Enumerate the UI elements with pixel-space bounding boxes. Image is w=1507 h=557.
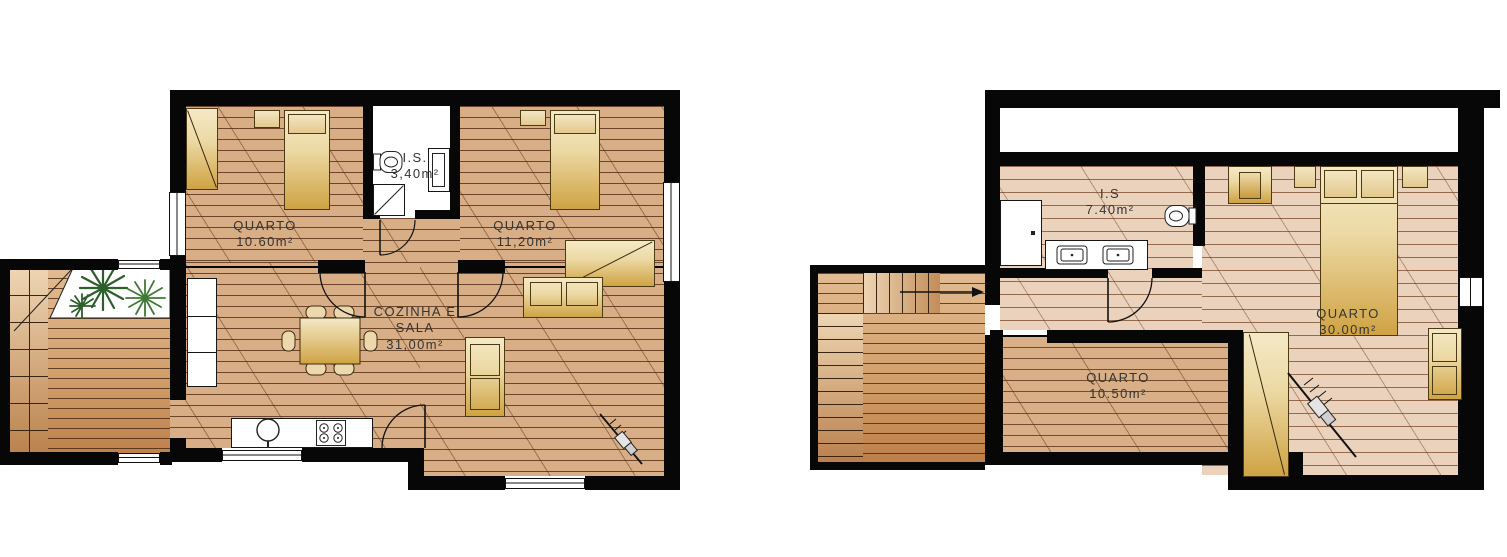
room-name: I.S. <box>378 150 452 166</box>
wall-segment <box>302 448 412 462</box>
pillow <box>1324 170 1357 198</box>
window <box>118 260 160 269</box>
room-name: QUARTO <box>190 218 340 234</box>
room-area: 31,00m² <box>340 337 490 353</box>
partition-line <box>1003 335 1047 337</box>
wall-segment <box>985 452 1243 465</box>
wall-segment <box>170 256 186 400</box>
room-name: QUARTO <box>450 218 600 234</box>
window <box>222 450 302 461</box>
room-label-bathroom: I.S. 3,40m² <box>378 150 452 183</box>
stair-direction-line <box>10 265 74 335</box>
room-area: 11,20m² <box>450 234 600 250</box>
wall-segment <box>170 90 680 106</box>
wardrobe <box>186 108 218 190</box>
nightstand <box>254 110 280 128</box>
wall-segment <box>985 90 1500 108</box>
cabinet-divider <box>188 316 216 317</box>
sofa-cushion <box>1432 366 1457 395</box>
sofa-cushion <box>530 282 562 306</box>
room-label-quarto-3: QUARTO 30.00m² <box>1268 306 1428 339</box>
wall-segment <box>0 259 10 465</box>
wall-segment <box>0 452 118 465</box>
room-name: I.S <box>1040 186 1180 202</box>
wall-segment <box>985 152 1484 166</box>
cabinet-divider <box>188 352 216 353</box>
wall-segment <box>810 265 818 470</box>
room-area: 10.50m² <box>1038 386 1198 402</box>
bed-fold-line <box>1321 203 1397 204</box>
roof-void-strip <box>1000 108 1458 152</box>
sofa-two-seat <box>523 277 603 318</box>
wall-segment <box>408 448 424 490</box>
pillow <box>288 114 326 134</box>
room-name: QUARTO <box>1038 370 1198 386</box>
room-area: 3,40m² <box>378 166 452 182</box>
door-swing-arc <box>1106 276 1154 324</box>
guitar-symbol <box>596 408 646 468</box>
room-area: 30.00m² <box>1268 322 1428 338</box>
wall-segment <box>1228 330 1243 465</box>
sofa-cushion <box>566 282 598 306</box>
room-name: COZINHA E <box>340 304 490 320</box>
room-area: 7.40m² <box>1040 202 1180 218</box>
window <box>505 478 585 489</box>
guitar-symbol <box>1282 365 1362 465</box>
window <box>118 453 160 463</box>
wall-segment <box>810 265 985 273</box>
sink-icon <box>253 417 283 449</box>
wall-segment <box>160 452 172 465</box>
shower <box>373 184 405 216</box>
door-swing-arc <box>378 218 418 258</box>
stove-icon <box>316 420 346 446</box>
wall-segment <box>424 476 505 490</box>
wall-segment <box>664 90 680 182</box>
sofa-cushion <box>470 378 500 410</box>
shower <box>1000 200 1042 266</box>
single-bed <box>284 110 330 210</box>
wall-segment <box>664 282 680 490</box>
wall-segment <box>1240 475 1484 490</box>
chair <box>282 331 295 351</box>
open-wardrobe <box>1228 166 1272 204</box>
window <box>1459 277 1483 307</box>
stair-direction-arrow <box>898 284 988 300</box>
sofa-cushion <box>1432 333 1457 362</box>
room-name-line2: SALA <box>340 320 490 336</box>
room-label-quarto-2: QUARTO 11,20m² <box>450 218 600 251</box>
floor-plan-drawing: QUARTO 10.60m² I.S. 3,40m² QUARTO 11,20m… <box>0 0 1507 557</box>
shower-drain <box>1031 231 1035 235</box>
wall-segment <box>1152 268 1202 278</box>
single-bed <box>550 110 600 210</box>
sofa-single <box>1428 328 1462 400</box>
room-label-quarto-4: QUARTO 10.50m² <box>1038 370 1198 403</box>
pillow <box>554 114 596 134</box>
wall-segment <box>160 259 170 270</box>
wall-segment <box>585 476 680 490</box>
wall-segment <box>985 90 1000 305</box>
double-vanity <box>1045 240 1148 270</box>
nightstand <box>520 110 546 126</box>
wall-segment <box>1047 330 1228 343</box>
room-name: QUARTO <box>1268 306 1428 322</box>
window <box>663 182 680 282</box>
door-swing-arc <box>380 403 427 450</box>
kitchen-tall-cabinet <box>187 278 217 387</box>
nightstand <box>1294 166 1316 188</box>
wall-segment <box>170 448 222 462</box>
wall-segment <box>810 462 985 470</box>
room-label-living: COZINHA E SALA 31,00m² <box>340 304 490 353</box>
wall-segment <box>0 259 118 270</box>
wall-segment <box>170 90 186 192</box>
room-area: 10.60m² <box>190 234 340 250</box>
partition-line <box>186 266 318 268</box>
pillow <box>1361 170 1394 198</box>
wardrobe-door <box>1239 172 1261 199</box>
room-label-quarto-1: QUARTO 10.60m² <box>190 218 340 251</box>
staircase-lower-run <box>818 313 863 458</box>
room-label-bathroom-upper: I.S 7.40m² <box>1040 186 1180 219</box>
nightstand <box>1402 166 1428 188</box>
wall-segment <box>990 330 1003 465</box>
window <box>169 192 186 256</box>
